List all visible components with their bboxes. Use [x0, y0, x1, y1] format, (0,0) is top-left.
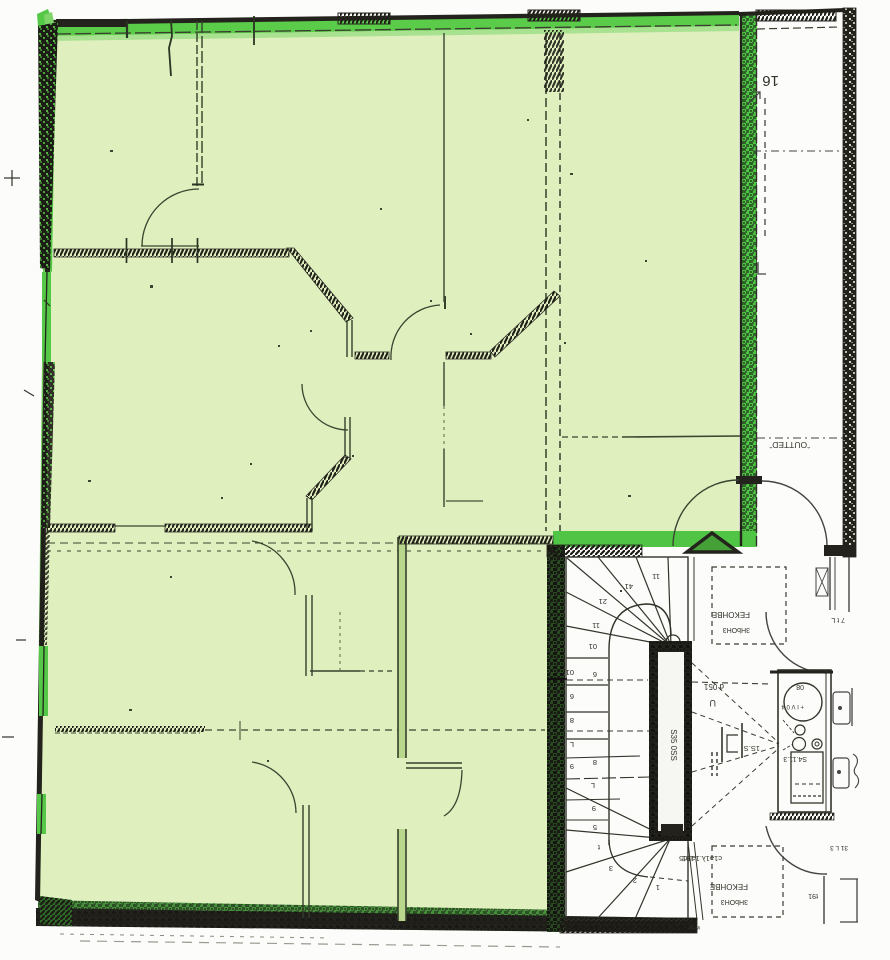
svg-text:8: 8 [593, 758, 597, 767]
svg-text:3HbOH3: 3HbOH3 [721, 898, 748, 905]
svg-text:1S.S: 1S.S [744, 744, 760, 753]
svg-text:L: L [591, 781, 595, 790]
svg-text:31 L 3: 31 L 3 [830, 844, 848, 851]
svg-text:16: 16 [762, 72, 779, 89]
svg-text:7 t L: 7 t L [831, 616, 845, 623]
svg-text:6: 6 [593, 670, 597, 679]
svg-text:6: 6 [570, 692, 574, 701]
svg-text:5: 5 [593, 823, 597, 832]
svg-text:FEKOHBE: FEKOHBE [712, 610, 750, 619]
svg-text:01: 01 [566, 668, 574, 677]
svg-text:01: 01 [589, 642, 597, 651]
svg-text:11: 11 [592, 621, 600, 630]
svg-text:wou: wou [689, 924, 701, 930]
svg-text:3: 3 [609, 864, 613, 873]
svg-text:d 051: d 051 [703, 682, 724, 691]
svg-text:c1ə1λ.1ǝ1d5: c1ə1λ.1ǝ1d5 [679, 854, 722, 863]
svg-text:3HbOH3: 3HbOH3 [723, 626, 750, 633]
svg-text:S4.11.3: S4.11.3 [783, 755, 807, 762]
svg-text:2: 2 [633, 876, 637, 885]
svg-text:08: 08 [796, 683, 804, 690]
svg-text:+ I V 0 4: + I V 0 4 [781, 703, 804, 709]
svg-text:U: U [710, 698, 717, 708]
svg-text:1: 1 [656, 883, 660, 892]
svg-text:t91: t91 [808, 892, 818, 899]
svg-text:S35 0SS: S35 0SS [669, 729, 678, 761]
svg-text:11: 11 [652, 572, 660, 581]
svg-text:9: 9 [592, 804, 596, 813]
svg-text:ˆOUTТEDˆ: ˆOUTТEDˆ [769, 440, 810, 450]
svg-text:8: 8 [570, 716, 574, 725]
svg-text:L: L [570, 740, 574, 749]
svg-text:9: 9 [570, 762, 574, 771]
svg-text:FEKOHBE: FEKOHBE [710, 882, 748, 891]
svg-text:21: 21 [599, 597, 607, 606]
svg-text:41: 41 [625, 582, 633, 591]
